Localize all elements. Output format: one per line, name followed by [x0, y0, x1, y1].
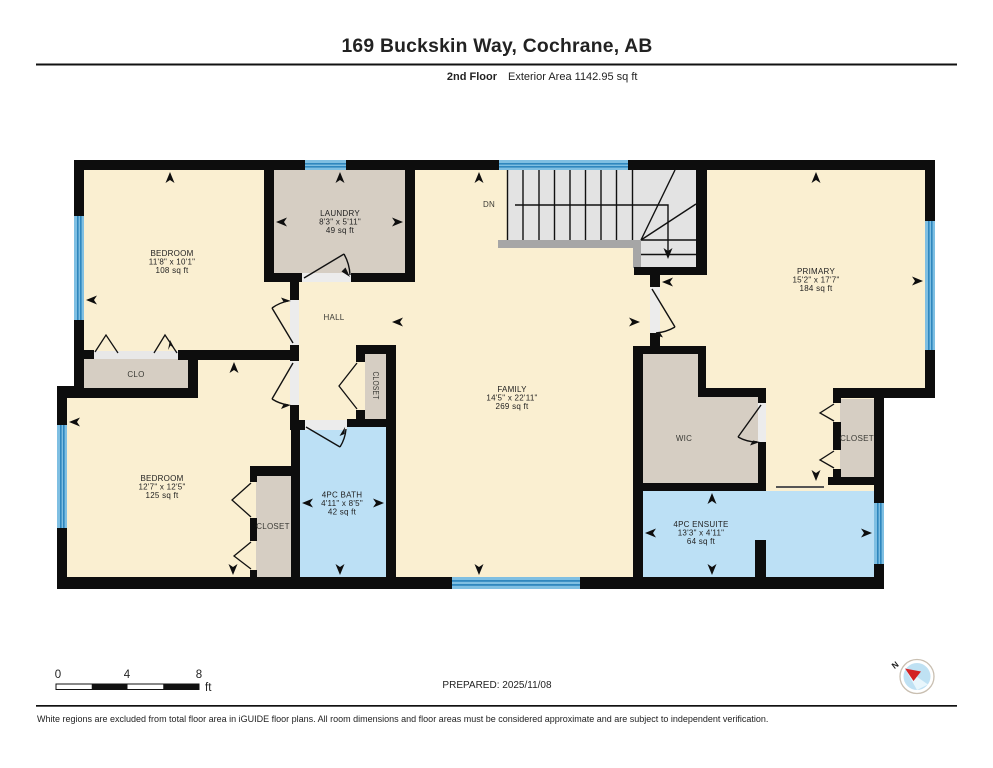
svg-text:CLOSET: CLOSET: [840, 434, 874, 443]
svg-text:HALL: HALL: [323, 313, 344, 322]
svg-text:0: 0: [55, 669, 61, 681]
svg-text:269 sq ft: 269 sq ft: [496, 402, 529, 411]
svg-text:108 sq ft: 108 sq ft: [156, 266, 189, 275]
svg-text:169 Buckskin Way, Cochrane, AB: 169 Buckskin Way, Cochrane, AB: [341, 36, 652, 57]
svg-text:WIC: WIC: [676, 434, 692, 443]
svg-text:4: 4: [124, 669, 131, 681]
svg-text:PREPARED: 2025/11/08: PREPARED: 2025/11/08: [442, 680, 552, 691]
svg-text:White regions are excluded fro: White regions are excluded from total fl…: [37, 714, 768, 724]
svg-text:Exterior Area 1142.95 sq ft: Exterior Area 1142.95 sq ft: [508, 71, 637, 83]
svg-text:DN: DN: [483, 200, 495, 209]
svg-text:125 sq ft: 125 sq ft: [146, 491, 179, 500]
svg-text:42 sq ft: 42 sq ft: [328, 508, 357, 517]
svg-text:49 sq ft: 49 sq ft: [326, 226, 355, 235]
svg-text:184 sq ft: 184 sq ft: [800, 284, 833, 293]
svg-text:CLOSET: CLOSET: [371, 372, 380, 400]
svg-text:64 sq ft: 64 sq ft: [687, 537, 716, 546]
svg-text:CLOSET: CLOSET: [256, 522, 290, 531]
svg-text:2nd Floor: 2nd Floor: [447, 71, 498, 83]
svg-text:CLO: CLO: [127, 370, 144, 379]
svg-text:ft: ft: [205, 682, 212, 694]
svg-text:8: 8: [196, 669, 202, 681]
